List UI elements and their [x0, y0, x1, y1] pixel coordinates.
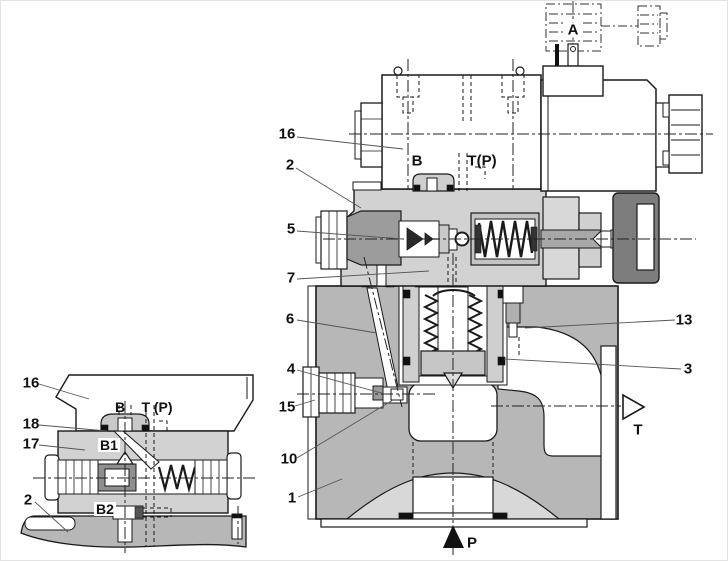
detail-callout-16: 16	[23, 376, 40, 391]
callout-6: 6	[286, 312, 294, 327]
port-label-tp: T(P)	[467, 154, 496, 169]
detail-port-label-b: B	[115, 400, 125, 414]
port-label-t: T	[633, 423, 642, 438]
callout-2: 2	[286, 158, 294, 173]
callout-7: 7	[287, 271, 295, 286]
p-port-arrow	[443, 525, 464, 548]
detail-port-label-b2: B2	[94, 502, 116, 516]
callout-5: 5	[287, 222, 295, 237]
detail-view	[21, 375, 255, 553]
drawing-geometry	[1, 1, 728, 561]
port-label-p: P	[467, 536, 477, 551]
callout-15: 15	[279, 400, 296, 415]
port-label-b: B	[412, 154, 423, 169]
t-port-arrow	[623, 395, 644, 419]
detail-port-label-b1: B1	[98, 438, 120, 452]
callout-3: 3	[684, 362, 692, 377]
detail-callout-2: 2	[24, 493, 32, 508]
detail-callout-17: 17	[23, 437, 40, 452]
callout-4: 4	[287, 362, 295, 377]
callout-16: 16	[279, 127, 296, 142]
port-label-a: A	[566, 23, 581, 38]
adjustment-knob	[541, 193, 659, 283]
detail-callout-18: 18	[23, 417, 40, 432]
callout-13: 13	[676, 313, 693, 328]
callout-10: 10	[281, 452, 298, 467]
valve-sectional-drawing: 16 2 5 7 6 4 15 10 1 13 3 A B T(P) T P 1…	[0, 0, 728, 561]
detail-port-label-tp: T (P)	[141, 400, 172, 414]
callout-1: 1	[288, 491, 296, 506]
